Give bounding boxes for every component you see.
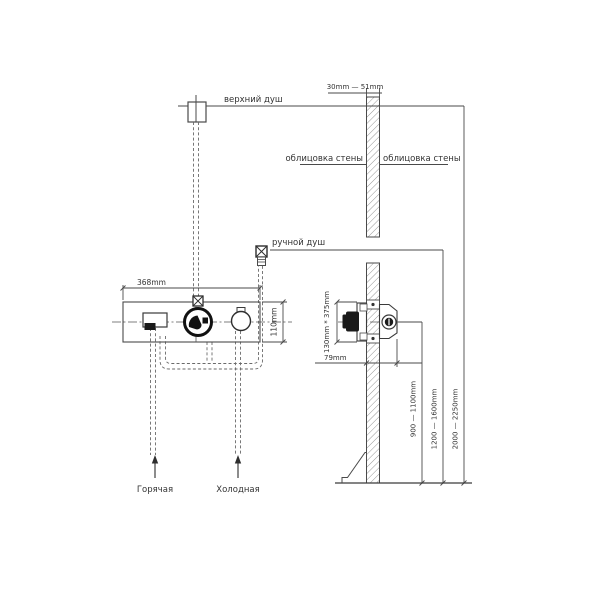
valve-side-view [338,300,420,343]
wall-hatch-lower [367,263,380,483]
mixer-spout-outlet [145,323,156,330]
hot-arrow-icon [152,455,158,464]
mixer-front-view [112,296,292,342]
hot-supply-label: Горячая [137,485,173,495]
shower-installation-diagram: 30mm — 51mm облицовка стены облицовка ст… [0,0,600,600]
overhead-height-range-label: 2000 — 2250mm [452,388,460,449]
wall-section [367,97,380,483]
overhead-shower-head [188,102,206,122]
concealed-piping [151,266,263,456]
floor [335,453,472,484]
plate-dimension-label: 130mm * 375mm [323,291,331,353]
wall-thickness-label: 30mm — 51mm [327,83,384,91]
valve-handle [346,312,359,332]
hand-shower-label: ручной душ [272,238,325,248]
hand-shower-height-range-label: 1200 — 1600mm [431,388,439,449]
hand-shower: ручной душ [256,238,443,266]
cold-supply-label: Холодная [216,485,259,495]
mode-square-icon [203,318,209,324]
overhead-shower-pipe [194,122,199,302]
overhead-shower: верхний душ [178,95,464,122]
volume-knob [232,312,251,331]
cold-arrow-icon [235,455,241,464]
wall-cladding-left-label: облицовка стены [285,154,363,164]
shower-tray-profile [342,453,367,484]
mixer-width-label: 368mm [137,278,166,287]
hand-shower-connector [258,257,266,266]
mixer-height-range-label: 900 — 1100mm [410,381,418,437]
hot-supply-callout: Горячая [137,455,173,495]
wall-hatch-upper [367,97,380,237]
wall-cladding-right-label: облицовка стены [383,154,461,164]
cold-supply-callout: Холодная [216,455,259,495]
mixer-width-dimension [121,285,263,300]
depth-dimension-label: 79mm [324,354,347,362]
mixer-height-label: 110mm [270,308,279,337]
diagram-canvas: 30mm — 51mm облицовка стены облицовка ст… [0,0,600,600]
overhead-shower-label: верхний душ [224,95,283,105]
